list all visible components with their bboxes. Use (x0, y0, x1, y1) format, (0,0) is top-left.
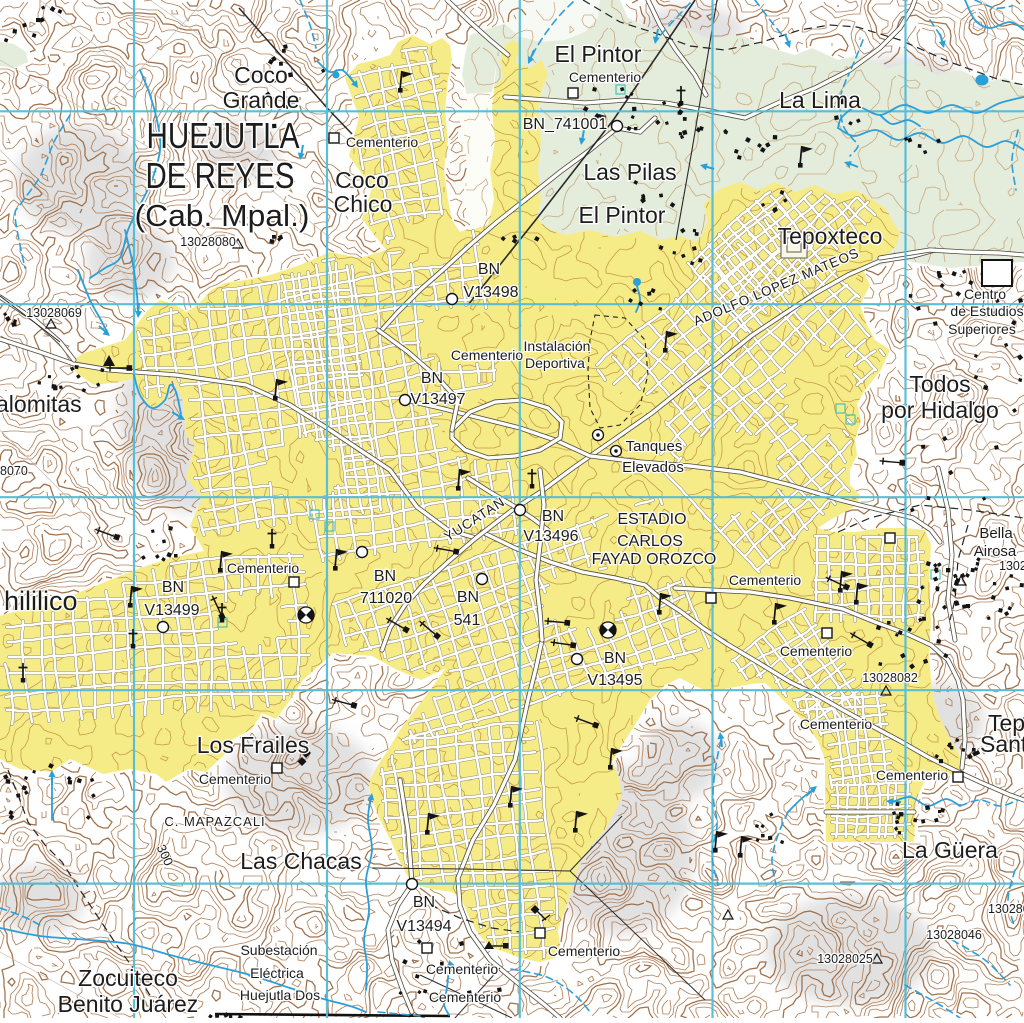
svg-text:BN: BN (604, 650, 626, 667)
svg-text:13028082: 13028082 (862, 671, 918, 685)
svg-text:C. MAPAZCALI: C. MAPAZCALI (164, 814, 265, 829)
svg-text:Las Chacas: Las Chacas (240, 848, 361, 874)
svg-text:hililico: hililico (4, 586, 78, 616)
svg-text:130280: 130280 (988, 902, 1024, 916)
svg-text:Tanques: Tanques (626, 438, 683, 455)
svg-text:Cementerio: Cementerio (876, 767, 949, 783)
svg-text:1302: 1302 (999, 559, 1024, 573)
svg-text:Airosa: Airosa (974, 543, 1017, 560)
svg-text:El Pintor: El Pintor (555, 41, 642, 67)
svg-text:Huejutla Dos: Huejutla Dos (240, 987, 320, 1003)
svg-text:Coco: Coco (234, 62, 288, 88)
svg-text:FAYAD OROZCO: FAYAD OROZCO (592, 551, 717, 568)
svg-text:La Güera: La Güera (902, 837, 998, 863)
svg-text:alomitas: alomitas (0, 391, 82, 417)
svg-text:BN: BN (478, 261, 500, 278)
svg-text:13028025: 13028025 (817, 952, 873, 966)
svg-text:V13494: V13494 (396, 918, 451, 935)
svg-text:V13498: V13498 (463, 284, 518, 301)
svg-text:BN: BN (374, 568, 396, 585)
svg-text:BN_741001: BN_741001 (523, 116, 608, 133)
svg-text:Cementerio: Cementerio (199, 771, 272, 787)
svg-text:Cementerio: Cementerio (429, 989, 502, 1005)
svg-text:V13499: V13499 (144, 602, 199, 619)
svg-text:La Lima: La Lima (779, 87, 861, 113)
svg-text:Cementerio: Cementerio (729, 572, 802, 588)
svg-text:Eléctrica: Eléctrica (250, 965, 304, 981)
svg-text:Cementerio: Cementerio (346, 134, 419, 150)
svg-text:BN: BN (162, 579, 184, 596)
svg-text:Superiores: Superiores (948, 321, 1016, 337)
svg-text:Chico: Chico (334, 191, 393, 217)
svg-text:DE REYES: DE REYES (146, 155, 295, 196)
svg-text:BN: BN (413, 894, 435, 911)
svg-text:13028046: 13028046 (926, 928, 982, 942)
svg-text:541: 541 (454, 612, 481, 629)
svg-text:El Pintor: El Pintor (579, 202, 666, 228)
svg-text:Instalación: Instalación (524, 338, 591, 354)
svg-text:Cementerio: Cementerio (451, 347, 524, 363)
svg-text:BN: BN (457, 589, 479, 606)
svg-text:Subestación: Subestación (240, 942, 317, 958)
svg-text:8070: 8070 (0, 464, 28, 478)
svg-text:Cementerio: Cementerio (548, 943, 621, 959)
svg-text:Las Pilas: Las Pilas (583, 159, 676, 185)
svg-text:BN: BN (421, 370, 443, 387)
svg-text:Coco: Coco (335, 167, 389, 193)
svg-text:13028069: 13028069 (26, 306, 82, 320)
svg-text:ESTADIO: ESTADIO (617, 511, 686, 528)
svg-text:Grande: Grande (223, 87, 300, 113)
svg-text:por Hidalgo: por Hidalgo (881, 397, 999, 423)
svg-text:CARLOS: CARLOS (617, 533, 683, 550)
svg-text:Cementerio: Cementerio (227, 560, 300, 576)
svg-text:Elevados: Elevados (622, 459, 684, 476)
svg-text:Cementerio: Cementerio (569, 69, 642, 85)
svg-text:Zocuiteco: Zocuiteco (78, 965, 178, 991)
svg-text:Tepoxteco: Tepoxteco (778, 223, 883, 249)
svg-text:Cementerio: Cementerio (426, 961, 499, 977)
svg-text:V13496: V13496 (523, 528, 578, 545)
svg-text:Centro: Centro (964, 286, 1006, 302)
svg-text:Los Frailes: Los Frailes (197, 732, 309, 758)
svg-text:Bella: Bella (979, 525, 1013, 542)
svg-text:HUEJUTLA: HUEJUTLA (147, 115, 300, 156)
svg-text:Cementerio: Cementerio (800, 716, 873, 732)
svg-text:711020: 711020 (360, 590, 412, 607)
svg-text:Benito Juárez: Benito Juárez (58, 991, 199, 1017)
svg-text:(Cab. Mpal.): (Cab. Mpal.) (135, 198, 310, 233)
svg-text:Cementerio: Cementerio (780, 643, 853, 659)
svg-text:BN: BN (542, 508, 564, 525)
svg-text:13028080: 13028080 (180, 235, 236, 249)
svg-text:V13495: V13495 (587, 672, 642, 689)
svg-text:Deportiva: Deportiva (525, 355, 585, 371)
svg-text:de Estudios: de Estudios (950, 303, 1023, 319)
svg-text:Todos: Todos (909, 371, 970, 397)
svg-text:V13497: V13497 (410, 391, 465, 408)
svg-text:Sant: Sant (980, 731, 1024, 757)
